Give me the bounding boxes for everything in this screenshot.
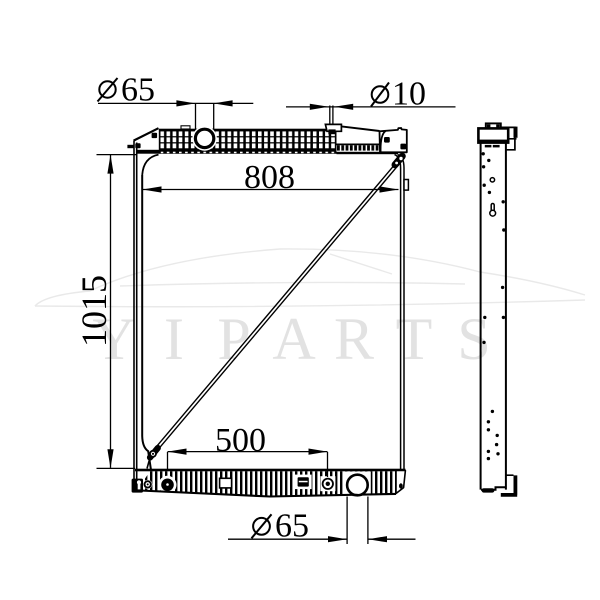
svg-text:808: 808 — [244, 159, 295, 196]
svg-text:R: R — [334, 306, 374, 372]
svg-text:1015: 1015 — [74, 275, 114, 347]
svg-text:S: S — [457, 306, 490, 372]
svg-text:500: 500 — [215, 422, 266, 459]
svg-text:I: I — [164, 306, 184, 372]
svg-text:A: A — [272, 306, 315, 372]
svg-text:P: P — [217, 306, 250, 372]
